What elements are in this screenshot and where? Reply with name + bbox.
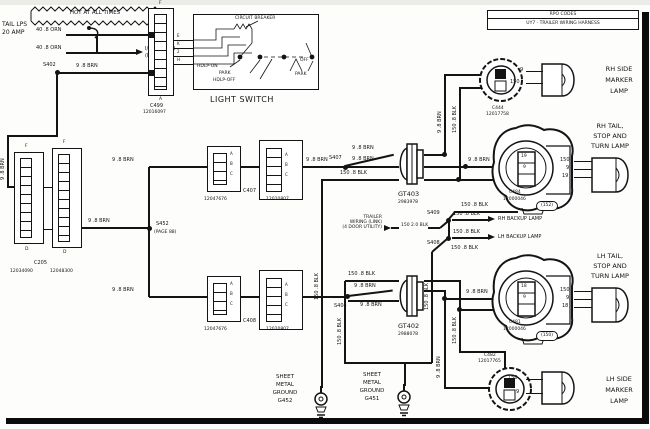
wire-c407-feed-label: 9 .8 BRN	[112, 158, 134, 164]
bulb-icon-lh-tail	[588, 280, 640, 330]
wire	[241, 296, 259, 298]
hdlp-on-label: HDLP-ON	[197, 64, 218, 69]
wire	[322, 179, 399, 181]
wire	[149, 166, 207, 168]
wire	[404, 362, 406, 386]
wire-c205-out	[82, 227, 149, 229]
c205-index: F	[63, 140, 66, 145]
g451-line4: G451	[365, 396, 380, 402]
pin	[149, 70, 155, 76]
bulb-pin	[574, 169, 592, 170]
rh-backup-wire-label: 150 .8 BLK	[453, 212, 480, 218]
riser-lh-gnd-label: 150 .8 BLK	[452, 317, 458, 344]
park-right-label: PARK	[295, 72, 307, 77]
wire	[424, 290, 446, 292]
g452-line3: GROUND	[273, 390, 298, 396]
c481-name: C481	[509, 320, 521, 325]
bulb-pin	[526, 83, 543, 84]
wire	[448, 220, 450, 238]
wire	[96, 34, 98, 53]
c205-index: F	[25, 144, 28, 149]
wire	[148, 167, 150, 297]
c484-part: 12000046	[503, 197, 526, 202]
g452-line4: G452	[278, 398, 293, 404]
gt403-name: GT403	[398, 191, 419, 198]
rh-marker-line1: RH SIDE	[606, 65, 633, 73]
connector-c407-right-cells	[266, 148, 282, 192]
lh-marker-line1: LH SIDE	[606, 375, 632, 383]
c407-pin: C	[285, 173, 288, 178]
bulb-pin	[574, 307, 592, 308]
junction	[457, 307, 462, 312]
pin	[149, 32, 155, 38]
wire	[149, 296, 207, 298]
gt402-name: GT402	[398, 323, 419, 330]
c408-name: C408	[243, 319, 256, 325]
rh-marker-line3: LAMP	[610, 87, 628, 95]
rh-backup-label: RH BACKUP LAMP	[498, 217, 542, 223]
riser-g451-label: 150 .8 BLK	[337, 318, 343, 345]
connector-c482	[487, 366, 533, 412]
rh-marker-pin-top: 9	[520, 68, 523, 74]
gnd-return-label: 150 .8 BLK	[461, 203, 488, 209]
switch-pin-label: E	[177, 34, 180, 39]
c408-part-left: 12047676	[204, 327, 227, 332]
wire	[7, 135, 58, 137]
arrow-ip-cluster	[136, 49, 143, 55]
light-switch-title: LIGHT SWITCH	[210, 95, 274, 104]
bulb-pin	[526, 71, 543, 72]
bulb-icon-rh-tail	[588, 150, 640, 200]
wire-40-orn	[66, 34, 150, 36]
frame-right	[642, 12, 649, 422]
bulb-pin	[574, 291, 592, 292]
gt403-part: 2983978	[398, 200, 418, 205]
wire	[459, 280, 461, 352]
wire-9-brn-label: 9 .8 BRN	[76, 64, 98, 70]
wire	[303, 166, 345, 168]
lh-backup-label: LH BACKUP LAMP	[498, 235, 541, 241]
riser-feed-label: 9 .8 BRN	[437, 111, 443, 133]
riser-gnd-label: 150 .8 BLK	[452, 106, 458, 133]
gnd-down-label: 150 .8 BLK	[451, 246, 478, 252]
lh-bulb-pin2: 9	[566, 296, 569, 302]
connector-c205-right-cells	[58, 154, 70, 242]
fuse-rating: 20 AMP	[2, 30, 24, 37]
g451-label: SHEET METAL GROUND G451	[350, 372, 394, 404]
arrow-trailer	[384, 225, 391, 231]
c205-part-left: 12034090	[10, 269, 33, 274]
c408-pin: C	[285, 303, 288, 308]
trailer-wire-label: 150 2.0 BLK	[401, 223, 428, 228]
c407-pin: A	[230, 152, 233, 157]
g451-line1: SHEET	[363, 372, 381, 378]
c444-part: 12017758	[486, 112, 509, 117]
gt403-wire-mid-label: 9 .8 BRN	[352, 157, 374, 163]
c499-index-bottom: A	[159, 97, 162, 102]
bulb-pin	[526, 379, 543, 380]
wire	[44, 229, 52, 230]
wire	[344, 362, 432, 364]
wire	[428, 227, 440, 229]
bulb-icon-rh-marker	[538, 58, 586, 102]
lh-tail-line2: STOP AND	[593, 262, 627, 270]
rpo-header: RPO CODES	[487, 12, 639, 17]
wire	[7, 135, 9, 187]
c408-pin: C	[230, 302, 233, 307]
gt402-bot-label: 9 .8 BRN	[360, 303, 382, 309]
switch-pin-label: 2	[177, 50, 180, 55]
wire	[452, 219, 488, 221]
c408-pin: B	[230, 292, 233, 297]
rh-socket-cell2: 9	[523, 165, 526, 170]
off-label: OFF	[300, 58, 309, 63]
frame-bottom	[6, 418, 649, 424]
c407-pin: B	[230, 162, 233, 167]
ground-icon-g452	[311, 386, 331, 418]
wire-c407-out-label: 9 .8 BRN	[306, 158, 328, 164]
bulb-pin	[574, 177, 592, 178]
lh-tail-tag: (150)	[536, 331, 558, 341]
bulb-pin	[574, 299, 592, 300]
gt403-wire-gnd-label: 150 .8 BLK	[340, 171, 367, 177]
splice-s407-label: S407	[329, 156, 342, 162]
rh-bulb-pin1: 150	[560, 158, 570, 164]
lh-marker-line3: LAMP	[610, 397, 628, 405]
lh-tail-line3: TURN LAMP	[591, 272, 629, 280]
lh-tail-line1: LH TAIL,	[597, 252, 623, 260]
bulb-pin	[526, 393, 543, 394]
gt403-wire-top-label: 9 .8 BRN	[352, 146, 374, 152]
rh-bulb-pin3: 19	[562, 174, 568, 180]
c407-name: C407	[243, 189, 256, 195]
c482-part: 12017765	[478, 359, 501, 364]
rh-tail-tag: (152)	[536, 201, 558, 211]
lh-backup-wire-label: 150 .8 BLK	[453, 230, 480, 236]
splice-s402-label: S402	[43, 63, 56, 69]
circuit-breaker-label: CIRCUIT BREAKER	[235, 16, 275, 21]
wire	[391, 227, 399, 229]
wire-40-orn-branch-label: 40 .8 ORN	[36, 46, 61, 52]
trailer-line3: (4 DOOR UTILITY)	[342, 225, 382, 230]
park-left-label: PARK	[219, 71, 231, 76]
junction	[442, 296, 447, 301]
lh-marker-title: LH SIDE MARKER LAMP	[592, 374, 646, 407]
rh-marker-line2: MARKER	[605, 76, 632, 84]
rh-socket-cell1: 19	[521, 154, 527, 159]
bulb-icon-lh-marker	[538, 366, 586, 410]
wire-9-brn	[57, 72, 150, 74]
wire	[344, 281, 346, 363]
g451-line3: GROUND	[360, 388, 385, 394]
lh-marker-pin-top: 150	[508, 376, 518, 382]
hot-label: HOT AT ALL TIMES	[30, 10, 160, 16]
lh-socket-cell1: 18	[521, 284, 527, 289]
gt402-part: 2988078	[398, 332, 418, 337]
wire	[452, 237, 488, 239]
switch-pin-label: H	[177, 58, 180, 63]
g451-line2: METAL	[363, 380, 381, 386]
g452-line2: METAL	[276, 382, 294, 388]
lh-marker-pin-bot: 9	[516, 390, 519, 396]
connector-c499-cells	[154, 14, 167, 90]
splice-s452-page: (PAGE 88)	[154, 230, 176, 235]
wire	[56, 72, 58, 136]
wire-drop-label: 9 .8 BRN	[0, 158, 6, 180]
c481-part: 12000046	[503, 327, 526, 332]
rh-tail-line1: RH TAIL,	[597, 122, 624, 130]
wire	[345, 166, 399, 168]
riser-g452-label: 150 .8 BLK	[314, 273, 320, 300]
wire	[459, 88, 461, 180]
rh-tail-line3: TURN LAMP	[591, 142, 629, 150]
g452-line1: SHEET	[276, 374, 294, 380]
c499-name: C499	[150, 104, 163, 110]
wiring-diagram: HOT AT ALL TIMES TAIL LPS 20 AMP 40 .8 O…	[0, 0, 650, 429]
c499-part: 12016097	[143, 110, 166, 115]
c205-part-right: 12048300	[50, 269, 73, 274]
wire	[424, 280, 461, 282]
arrow-lh-backup	[488, 234, 495, 240]
rh-tail-line2: STOP AND	[593, 132, 627, 140]
trailer-link-text: TRAILER WIRING (LINK) (4 DOOR UTILITY)	[330, 215, 382, 231]
c407-pin: A	[285, 153, 288, 158]
connector-c407-left-cells	[213, 153, 227, 185]
connector-c408-left-cells	[213, 283, 227, 315]
lh-socket-cell2: 9	[523, 295, 526, 300]
c407-pin: C	[230, 172, 233, 177]
wire	[444, 75, 446, 155]
connector-c408-right-cells	[266, 278, 282, 322]
g452-label: SHEET METAL GROUND G452	[262, 374, 308, 406]
riser-lh-feed-label: 9 .8 BRN	[436, 356, 442, 378]
wire	[444, 74, 480, 76]
c205-index: D	[63, 250, 66, 255]
wire	[444, 290, 446, 389]
rpo-code: UY7 - TRAILER WIRING HARNESS	[487, 21, 639, 26]
c408-pin: A	[285, 283, 288, 288]
lh-marker-line2: MARKER	[605, 386, 632, 394]
wire-c408-feed-label: 9 .8 BRN	[112, 288, 134, 294]
fuse-name: TAIL LPS	[2, 22, 27, 29]
fuse-icon	[84, 25, 102, 39]
wire	[174, 64, 193, 65]
c408-part-right: 12020807	[266, 327, 289, 332]
wire	[241, 166, 259, 168]
c407-pin: B	[285, 163, 288, 168]
wire-c205-out-label: 9 .8 BRN	[88, 219, 110, 225]
wire	[348, 290, 393, 297]
lh-bulb-pin1: 150	[560, 288, 570, 294]
wire	[44, 187, 52, 188]
junction	[463, 164, 468, 169]
c444-name: C444	[492, 106, 504, 111]
c408-pin: A	[230, 282, 233, 287]
rh-marker-pin-bot: 150	[510, 80, 520, 86]
switch-pin-label: K	[177, 42, 180, 47]
c407-part-left: 12047676	[204, 197, 227, 202]
gt402-mid-label: 9 .8 BRN	[354, 284, 376, 290]
wire	[444, 387, 490, 389]
lh-feed-label: 9 .8 BRN	[466, 290, 488, 296]
wire-40-orn-label: 40 .8 ORN	[36, 28, 61, 34]
connector-c205-left-cells	[20, 158, 32, 238]
splice-s409-label: S409	[427, 211, 440, 217]
wire	[321, 179, 323, 388]
hdlp-off-label: HDLP-OFF	[213, 78, 235, 83]
wire-40-orn-branch	[66, 52, 136, 54]
wire	[345, 280, 399, 282]
ground-icon-g451	[394, 384, 414, 416]
splice-s452-label: S452	[156, 222, 169, 228]
wire	[303, 296, 348, 298]
rh-marker-title: RH SIDE MARKER LAMP	[592, 64, 646, 97]
gt402-gnd-label: 150 .8 BLK	[348, 272, 375, 278]
c484-name: C484	[509, 190, 521, 195]
c205-name: C205	[34, 261, 47, 267]
lh-bulb-pin3: 18	[562, 304, 568, 310]
bulb-pin	[574, 161, 592, 162]
c205-index: D	[25, 247, 28, 252]
c499-index-top: F	[159, 1, 162, 6]
c407-part-right: 12020807	[266, 197, 289, 202]
divider	[488, 18, 638, 19]
c482-name: C482	[484, 353, 496, 358]
rh-bulb-pin2: 9	[566, 166, 569, 172]
wire	[459, 351, 506, 353]
c408-pin: B	[285, 293, 288, 298]
